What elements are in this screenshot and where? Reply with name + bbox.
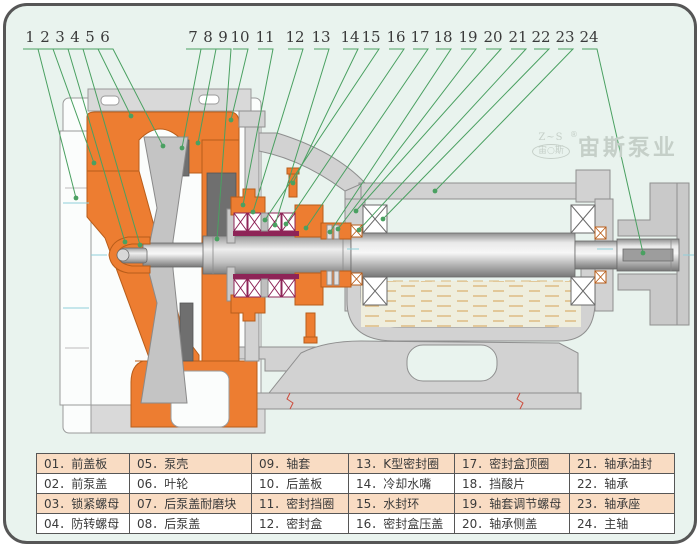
callout-number-1: 1 [25,28,35,46]
leader-line-23 [435,49,573,191]
emblem-zs-text: Z~S [532,133,570,143]
leader-line-17 [306,49,428,228]
leader-dot-7 [180,146,185,151]
callout-number-4: 4 [70,28,80,46]
leader-dot-15 [263,218,268,223]
callout-number-8: 8 [203,28,213,46]
pedestal-shape [238,341,581,409]
callout-number-11: 11 [255,28,274,46]
callout-number-15: 15 [361,28,380,46]
callout-number-20: 20 [483,28,502,46]
part-cell-12: 12．密封盒 [252,514,349,534]
part-cell-09: 09．轴套 [252,454,349,474]
part-cell-04: 04．防转螺母 [37,514,130,534]
parts-table-row: 04．防转螺母08．后泵盖12．密封盒16．密封盒压盖20．轴承侧盖24．主轴 [37,514,675,534]
callout-number-2: 2 [40,28,50,46]
leader-dot-6 [161,144,166,149]
parts-table-row: 03．锁紧螺母07．后泵盖耐磨块11．密封挡圈15．水封环19．轴套调节螺母23… [37,494,675,514]
leader-dot-24 [641,251,646,256]
leader-dot-19 [336,227,341,232]
leader-dot-23 [433,189,438,194]
brand-emblem: Z~S ® 宙○斯 [532,133,570,159]
callout-number-12: 12 [285,28,304,46]
part-cell-03: 03．锁紧螺母 [37,494,130,514]
part-cell-01: 01．前盖板 [37,454,130,474]
callout-number-24: 24 [579,28,598,46]
part-cell-17: 17．密封盒顶圈 [455,454,570,474]
callout-number-21: 21 [508,28,527,46]
callout-number-13: 13 [311,28,330,46]
parts-table-row: 01．前盖板05．泵壳09．轴套13．K型密封圈17．密封盒顶圈21．轴承油封 [37,454,675,474]
leader-dot-4 [138,243,143,248]
part-cell-07: 07．后泵盖耐磨块 [130,494,252,514]
emblem-oval-text: 宙○斯 [532,144,570,159]
callout-number-10: 10 [230,28,249,46]
callout-number-3: 3 [55,28,65,46]
oil-level [361,281,581,327]
leader-line-21 [359,49,526,230]
leader-line-19 [338,49,476,229]
callout-number-9: 9 [218,28,228,46]
leader-dot-2 [92,161,97,166]
leader-dot-5 [129,114,134,119]
part-cell-21: 21．轴承油封 [570,454,675,474]
leader-dot-3 [123,240,128,245]
part-cell-13: 13．K型密封圈 [349,454,455,474]
part-cell-06: 06．叶轮 [130,474,252,494]
part-cell-11: 11．密封挡圈 [252,494,349,514]
brand-logo: Z~S ® 宙○斯 宙斯泵业 [532,130,678,162]
callout-number-19: 19 [458,28,477,46]
leader-dot-21 [357,228,362,233]
part-cell-02: 02．前泵盖 [37,474,130,494]
part-cell-20: 20．轴承侧盖 [455,514,570,534]
leader-dot-20 [354,209,359,214]
callout-number-14: 14 [340,28,359,46]
parts-table: 01．前盖板05．泵壳09．轴套13．K型密封圈17．密封盒顶圈21．轴承油封0… [36,453,675,534]
leader-dot-8 [196,141,201,146]
registered-mark: ® [570,131,578,139]
callout-number-7: 7 [188,28,198,46]
leader-dot-16 [284,222,289,227]
leader-dot-1 [74,196,79,201]
part-cell-15: 15．水封环 [349,494,455,514]
leader-dot-22 [381,217,386,222]
diagram-frame: 123456789101112131415161718192021222324 … [3,3,697,544]
leader-dot-11 [241,203,246,208]
callout-number-18: 18 [433,28,452,46]
part-cell-16: 16．密封盒压盖 [349,514,455,534]
leader-dot-12 [251,210,256,215]
part-cell-10: 10．后盖板 [252,474,349,494]
leader-dot-9 [215,237,220,242]
callout-number-22: 22 [531,28,550,46]
leader-dot-13 [273,223,278,228]
leader-dot-17 [304,226,309,231]
callout-number-17: 17 [410,28,429,46]
part-cell-14: 14．冷却水嘴 [349,474,455,494]
leader-dot-18 [328,230,333,235]
shaft-nose-lock-nut [109,237,150,273]
leader-dot-10 [229,118,234,123]
callout-number-5: 5 [85,28,95,46]
part-cell-23: 23．轴承座 [570,494,675,514]
part-cell-18: 18．挡酸片 [455,474,570,494]
leader-line-18 [330,49,451,232]
brand-name: 宙斯泵业 [578,130,678,162]
callout-number-23: 23 [555,28,574,46]
callout-number-16: 16 [386,28,405,46]
part-cell-05: 05．泵壳 [130,454,252,474]
callout-number-6: 6 [100,28,110,46]
part-cell-24: 24．主轴 [570,514,675,534]
part-cell-08: 08．后泵盖 [130,514,252,534]
part-cell-19: 19．轴套调节螺母 [455,494,570,514]
parts-table-row: 02．前泵盖06．叶轮10．后盖板14．冷却水嘴18．挡酸片22．轴承 [37,474,675,494]
part-cell-22: 22．轴承 [570,474,675,494]
